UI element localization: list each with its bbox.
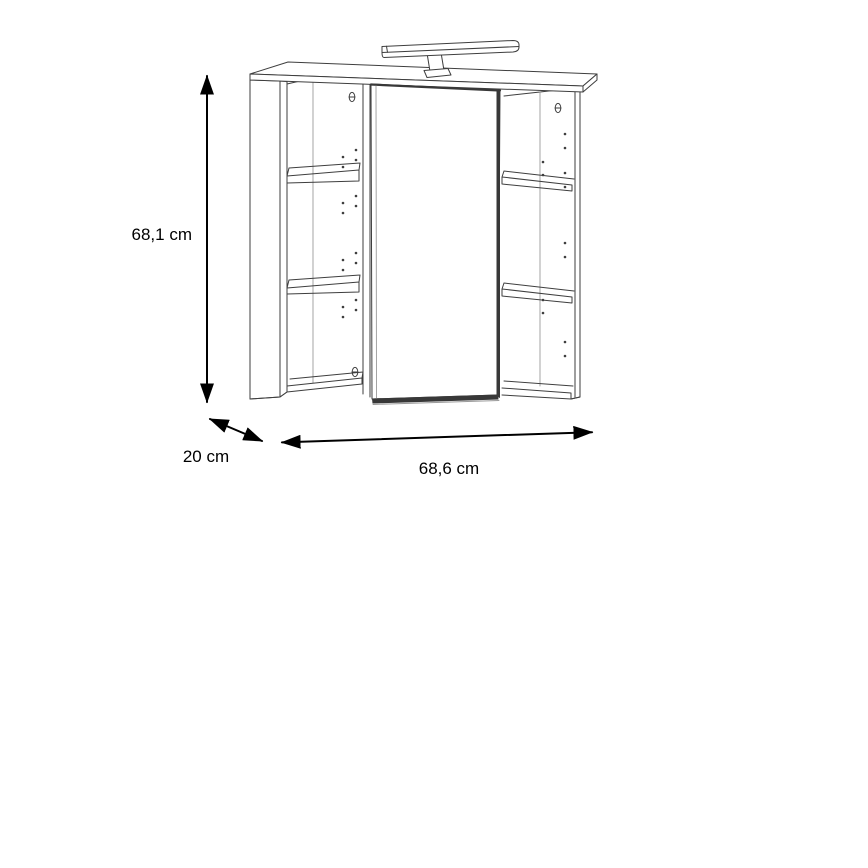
height-dimension: 68,1 cm bbox=[132, 76, 207, 402]
shelf-pin-holes-right bbox=[542, 133, 567, 358]
depth-dimension: 20 cm bbox=[183, 419, 262, 466]
right-side-panel bbox=[571, 88, 580, 399]
mirror-door bbox=[371, 84, 500, 405]
height-dimension-label: 68,1 cm bbox=[132, 225, 192, 244]
center-divider bbox=[363, 77, 370, 397]
depth-dimension-label: 20 cm bbox=[183, 447, 229, 466]
mirror-door-right-edge bbox=[497, 90, 501, 398]
left-shelf-2 bbox=[287, 275, 360, 294]
right-shelf-compartment bbox=[502, 88, 580, 399]
mirror-cabinet-drawing: 68,1 cm 20 cm 68,6 cm bbox=[0, 0, 868, 868]
light-bar bbox=[382, 41, 519, 58]
left-shelf-1 bbox=[287, 163, 360, 183]
width-dimension: 68,6 cm bbox=[282, 432, 592, 478]
width-dimension-arrow bbox=[282, 432, 592, 442]
depth-dimension-arrow bbox=[210, 419, 262, 441]
right-bottom-board bbox=[502, 381, 580, 399]
width-dimension-label: 68,6 cm bbox=[419, 459, 479, 478]
left-shelf-compartment bbox=[287, 75, 370, 397]
keyhole-mount-icon bbox=[349, 92, 358, 376]
left-side-panel bbox=[250, 80, 287, 399]
right-shelf-2 bbox=[502, 283, 574, 303]
product-dimension-diagram: 68,1 cm 20 cm 68,6 cm bbox=[0, 0, 868, 868]
right-shelf-1 bbox=[502, 171, 574, 191]
light-mount-stem bbox=[424, 53, 451, 78]
left-bottom-board bbox=[287, 372, 363, 392]
keyhole-mount-icon bbox=[555, 103, 561, 112]
